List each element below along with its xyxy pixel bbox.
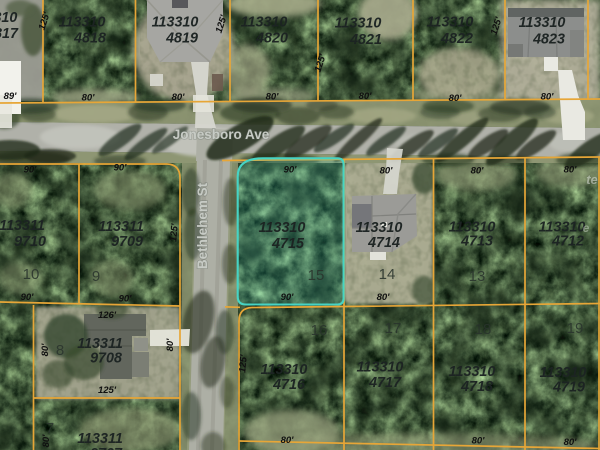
svg-text:4712: 4712: [551, 234, 584, 250]
svg-text:90': 90': [119, 294, 133, 305]
svg-text:113310: 113310: [0, 10, 17, 26]
svg-text:Jonesboro Ave: Jonesboro Ave: [173, 127, 270, 142]
svg-text:4713: 4713: [460, 234, 493, 250]
svg-text:125': 125': [237, 354, 250, 374]
svg-text:7: 7: [46, 420, 54, 437]
svg-text:90': 90': [281, 292, 295, 303]
svg-text:113311: 113311: [98, 219, 144, 235]
svg-text:80': 80': [541, 92, 555, 103]
svg-text:80': 80': [266, 92, 280, 103]
svg-text:8: 8: [56, 342, 64, 359]
svg-text:113310: 113310: [356, 220, 403, 236]
svg-text:125': 125': [98, 385, 117, 396]
svg-text:4714: 4714: [367, 235, 400, 251]
svg-text:90': 90': [284, 165, 298, 176]
svg-text:80': 80': [564, 437, 578, 448]
svg-text:113310: 113310: [259, 220, 306, 236]
svg-text:Bethlehem St: Bethlehem St: [195, 182, 210, 269]
svg-text:90': 90': [114, 163, 128, 174]
svg-text:4717: 4717: [368, 375, 402, 391]
svg-text:15: 15: [308, 267, 325, 284]
svg-text:113310: 113310: [335, 16, 382, 32]
svg-text:80': 80': [471, 166, 485, 177]
svg-text:4819: 4819: [165, 31, 198, 47]
svg-text:13: 13: [469, 268, 486, 285]
svg-text:19: 19: [567, 320, 584, 337]
svg-text:4718: 4718: [460, 379, 493, 395]
svg-text:80': 80': [380, 166, 394, 177]
svg-text:4820: 4820: [255, 31, 288, 47]
svg-text:4715: 4715: [271, 236, 305, 252]
svg-text:4719: 4719: [552, 380, 585, 396]
svg-text:9707: 9707: [90, 446, 123, 450]
svg-text:113310: 113310: [59, 15, 106, 31]
svg-text:4823: 4823: [532, 32, 565, 48]
svg-text:18: 18: [475, 321, 492, 338]
svg-text:16: 16: [311, 322, 328, 339]
svg-text:80': 80': [359, 91, 373, 102]
svg-text:113311: 113311: [77, 431, 123, 447]
svg-text:80': 80': [165, 338, 176, 352]
svg-text:113310: 113310: [152, 15, 199, 31]
svg-text:4818: 4818: [73, 31, 106, 47]
svg-text:113310: 113310: [449, 364, 496, 380]
svg-text:9710: 9710: [14, 234, 46, 250]
svg-text:113310: 113310: [519, 15, 566, 31]
svg-text:80': 80': [472, 436, 486, 447]
svg-text:9708: 9708: [90, 351, 122, 367]
svg-text:113310: 113310: [261, 362, 308, 378]
svg-text:90': 90': [21, 292, 35, 303]
svg-text:90': 90': [24, 165, 38, 176]
svg-text:4817: 4817: [0, 26, 19, 42]
svg-text:80': 80': [564, 165, 578, 176]
svg-text:80': 80': [281, 435, 295, 446]
svg-text:80': 80': [449, 93, 463, 104]
svg-text:113310: 113310: [357, 360, 404, 376]
svg-text:te: te: [586, 172, 598, 187]
svg-text:80': 80': [172, 92, 186, 103]
svg-text:e: e: [583, 221, 590, 235]
svg-text:10: 10: [23, 266, 40, 283]
svg-text:4822: 4822: [440, 31, 473, 47]
svg-text:80': 80': [40, 343, 51, 357]
svg-text:14: 14: [379, 266, 396, 283]
svg-text:4821: 4821: [349, 32, 382, 48]
svg-text:126': 126': [98, 310, 117, 321]
svg-text:80': 80': [41, 434, 52, 448]
svg-text:125': 125': [168, 223, 181, 243]
svg-text:113311: 113311: [0, 218, 45, 234]
svg-text:80': 80': [82, 93, 96, 104]
svg-text:113310: 113310: [427, 15, 474, 31]
svg-text:80': 80': [377, 292, 391, 303]
svg-text:9: 9: [92, 268, 100, 285]
svg-text:17: 17: [385, 320, 402, 337]
svg-text:4716: 4716: [272, 377, 306, 393]
svg-text:113310: 113310: [241, 15, 288, 31]
svg-text:89': 89': [4, 91, 18, 102]
svg-text:9709: 9709: [111, 234, 143, 250]
